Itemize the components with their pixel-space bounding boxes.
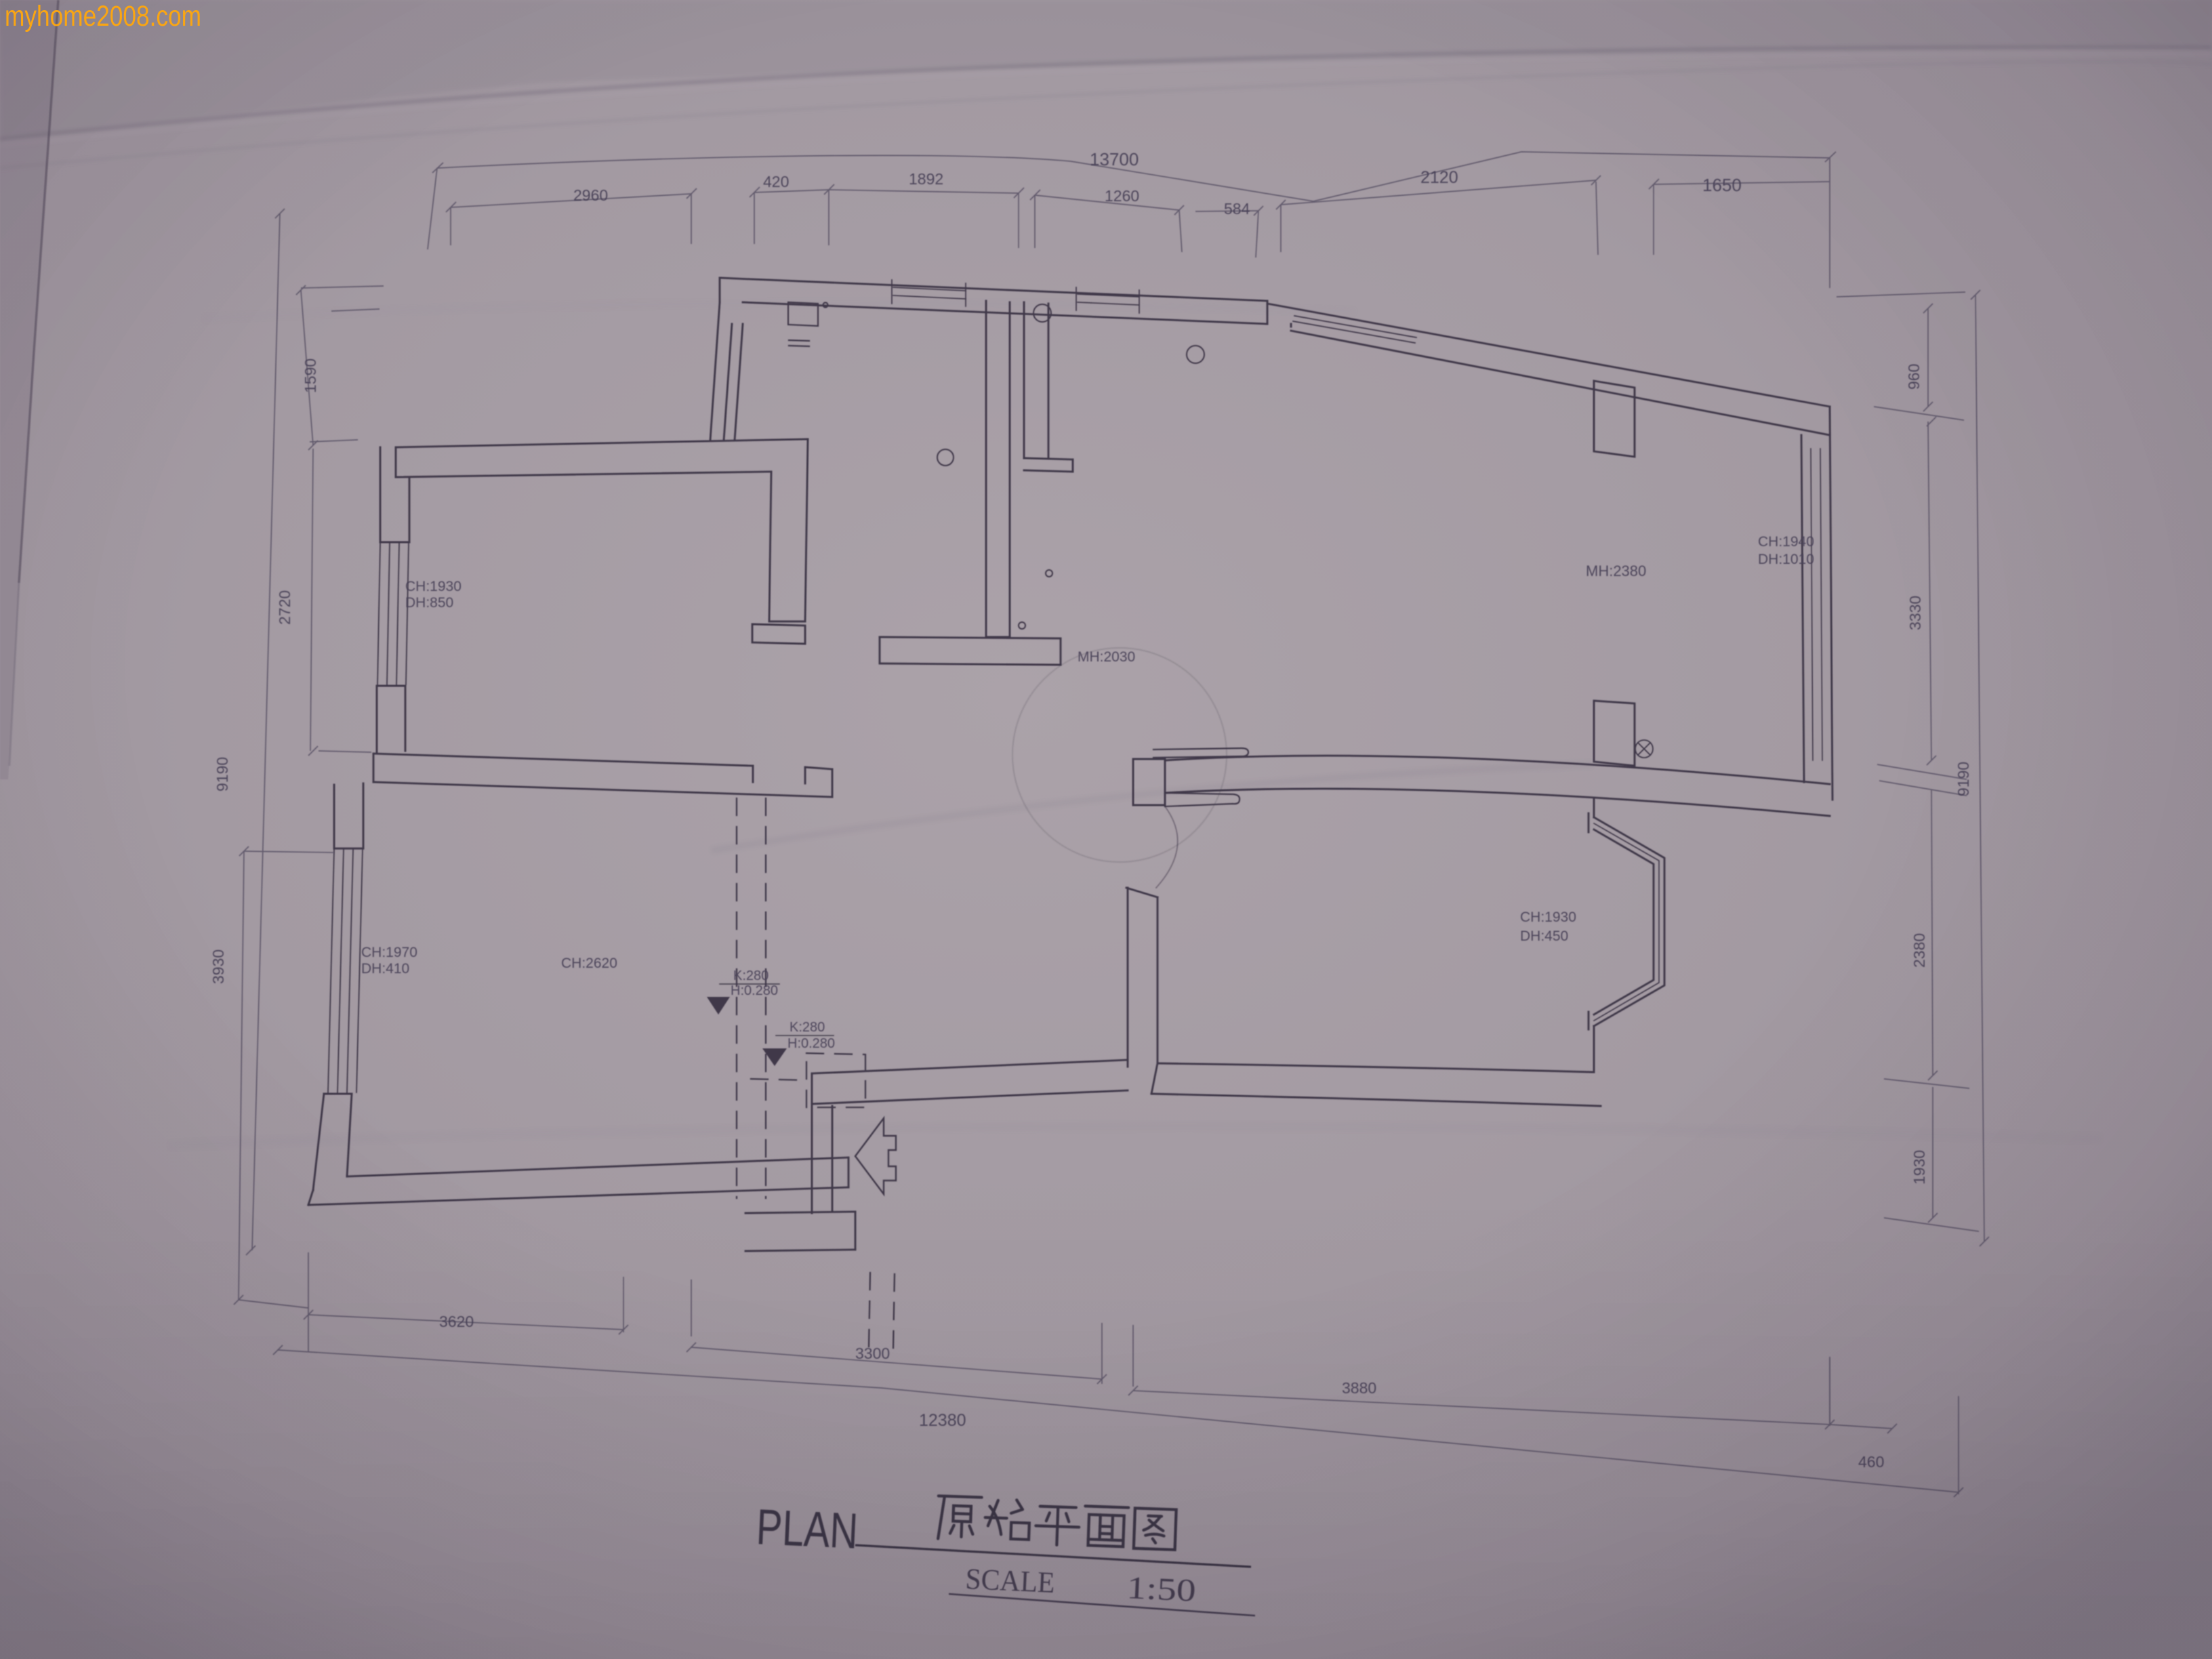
svg-text:myhome2008.com: myhome2008.com <box>5 0 201 33</box>
